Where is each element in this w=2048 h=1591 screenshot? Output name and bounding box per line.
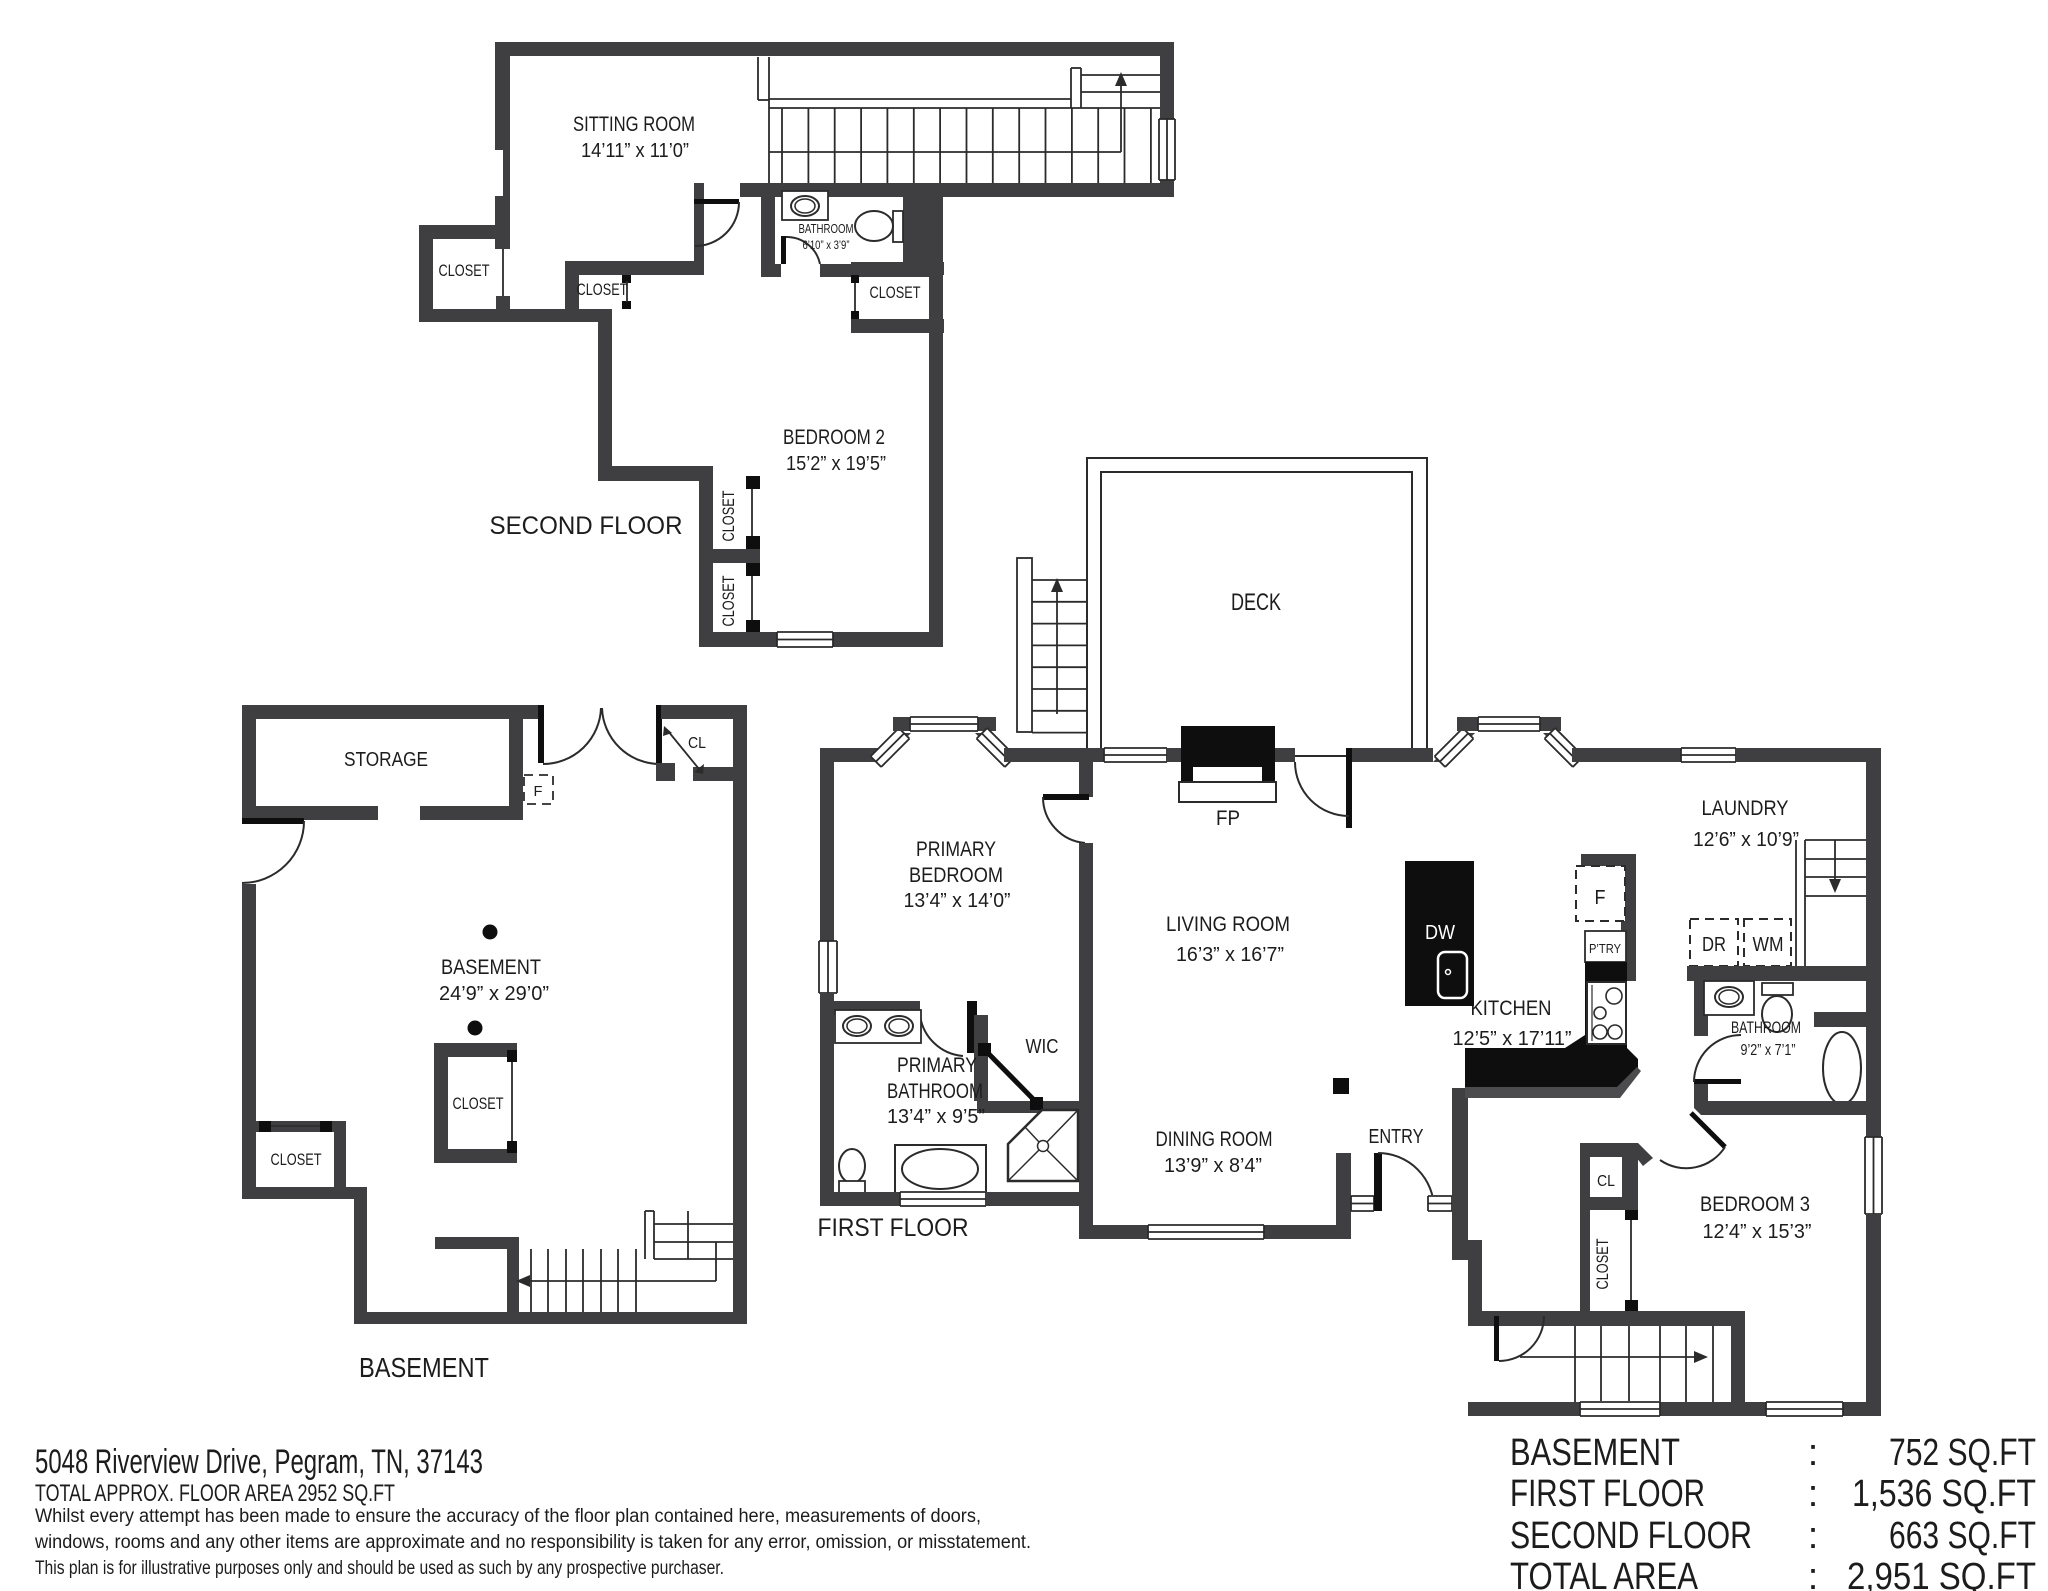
svg-text:5048 Riverview Drive, Pegram,: 5048 Riverview Drive, Pegram, TN, 37143 — [35, 1443, 483, 1481]
svg-text:15’2” x 19’5”: 15’2” x 19’5” — [786, 453, 886, 475]
svg-text:This plan is for illustrative: This plan is for illustrative purposes o… — [35, 1558, 724, 1579]
svg-text:CLOSET: CLOSET — [1593, 1239, 1612, 1290]
svg-text:F: F — [1595, 887, 1606, 909]
svg-text:DINING ROOM: DINING ROOM — [1156, 1128, 1273, 1151]
svg-text:WM: WM — [1753, 934, 1784, 956]
svg-text:F: F — [534, 783, 543, 800]
svg-text:LIVING ROOM: LIVING ROOM — [1166, 913, 1290, 936]
svg-text:FIRST FLOOR: FIRST FLOOR — [1510, 1473, 1705, 1515]
svg-text:CLOSET: CLOSET — [577, 280, 628, 299]
svg-text:CLOSET: CLOSET — [719, 491, 738, 542]
svg-text:LAUNDRY: LAUNDRY — [1702, 797, 1789, 820]
svg-text::: : — [1808, 1473, 1819, 1515]
svg-text:WIC: WIC — [1026, 1036, 1059, 1058]
svg-text:CLOSET: CLOSET — [439, 261, 490, 280]
svg-text:SECOND FLOOR: SECOND FLOOR — [1510, 1515, 1752, 1557]
svg-text:CLOSET: CLOSET — [453, 1094, 504, 1113]
svg-text:13’9” x 8’4”: 13’9” x 8’4” — [1164, 1155, 1262, 1177]
svg-text:SITTING ROOM: SITTING ROOM — [573, 113, 695, 136]
svg-text:windows, rooms and any other i: windows, rooms and any other items are a… — [34, 1532, 1031, 1553]
svg-text:BASEMENT: BASEMENT — [1510, 1432, 1680, 1474]
svg-text:SECOND FLOOR: SECOND FLOOR — [490, 512, 683, 540]
svg-text:6’10” x 3’9”: 6’10” x 3’9” — [803, 238, 850, 252]
svg-text:BASEMENT: BASEMENT — [359, 1352, 489, 1383]
svg-text:PRIMARY: PRIMARY — [916, 838, 996, 861]
svg-text:24’9” x 29’0”: 24’9” x 29’0” — [439, 983, 549, 1005]
svg-text:752 SQ.FT: 752 SQ.FT — [1889, 1432, 2036, 1474]
svg-text::: : — [1808, 1432, 1819, 1474]
svg-text:663 SQ.FT: 663 SQ.FT — [1889, 1515, 2036, 1557]
svg-text:CL: CL — [1597, 1173, 1615, 1190]
svg-text:P’TRY: P’TRY — [1589, 941, 1621, 956]
svg-text:BATHROOM: BATHROOM — [799, 221, 854, 236]
svg-text::: : — [1808, 1515, 1819, 1557]
svg-text:2,951 SQ.FT: 2,951 SQ.FT — [1847, 1556, 2036, 1591]
svg-text:FIRST FLOOR: FIRST FLOOR — [818, 1214, 969, 1242]
svg-text:1,536 SQ.FT: 1,536 SQ.FT — [1852, 1473, 2036, 1515]
svg-text:CLOSET: CLOSET — [719, 576, 738, 627]
svg-text:PRIMARY: PRIMARY — [897, 1054, 977, 1077]
svg-text:9’2” x 7’1”: 9’2” x 7’1” — [1741, 1042, 1796, 1059]
svg-text:DECK: DECK — [1231, 589, 1281, 616]
svg-text:13’4” x 9’5”: 13’4” x 9’5” — [887, 1106, 985, 1128]
svg-text:TOTAL AREA: TOTAL AREA — [1510, 1556, 1699, 1591]
svg-text:BASEMENT: BASEMENT — [441, 956, 541, 979]
svg-text:12’4” x 15’3”: 12’4” x 15’3” — [1703, 1221, 1812, 1243]
svg-text:BEDROOM 3: BEDROOM 3 — [1700, 1193, 1810, 1216]
svg-text:BEDROOM 2: BEDROOM 2 — [783, 426, 885, 449]
svg-text:13’4” x 14’0”: 13’4” x 14’0” — [904, 890, 1011, 912]
svg-text:BEDROOM: BEDROOM — [909, 864, 1003, 887]
svg-text:BATHROOM: BATHROOM — [1731, 1018, 1801, 1037]
svg-text:TOTAL APPROX. FLOOR AREA 2952: TOTAL APPROX. FLOOR AREA 2952 SQ.FT — [35, 1480, 395, 1507]
svg-text:Whilst every attempt has been: Whilst every attempt has been made to en… — [35, 1506, 981, 1527]
svg-text:CL: CL — [688, 735, 706, 752]
svg-text:CLOSET: CLOSET — [271, 1150, 322, 1169]
svg-text:12’5” x 17’11”: 12’5” x 17’11” — [1453, 1028, 1572, 1050]
svg-text:12’6” x 10’9”: 12’6” x 10’9” — [1693, 829, 1799, 851]
svg-text:FP: FP — [1216, 807, 1240, 830]
svg-text::: : — [1808, 1556, 1819, 1591]
svg-text:CLOSET: CLOSET — [870, 283, 921, 302]
svg-text:14’11” x 11’0”: 14’11” x 11’0” — [581, 140, 689, 162]
svg-text:STORAGE: STORAGE — [344, 749, 428, 771]
svg-text:16’3” x 16’7”: 16’3” x 16’7” — [1176, 944, 1284, 966]
svg-text:DR: DR — [1702, 934, 1726, 956]
svg-text:KITCHEN: KITCHEN — [1471, 997, 1552, 1020]
svg-text:BATHROOM: BATHROOM — [887, 1080, 983, 1103]
svg-text:ENTRY: ENTRY — [1369, 1126, 1424, 1148]
svg-text:DW: DW — [1425, 922, 1455, 944]
